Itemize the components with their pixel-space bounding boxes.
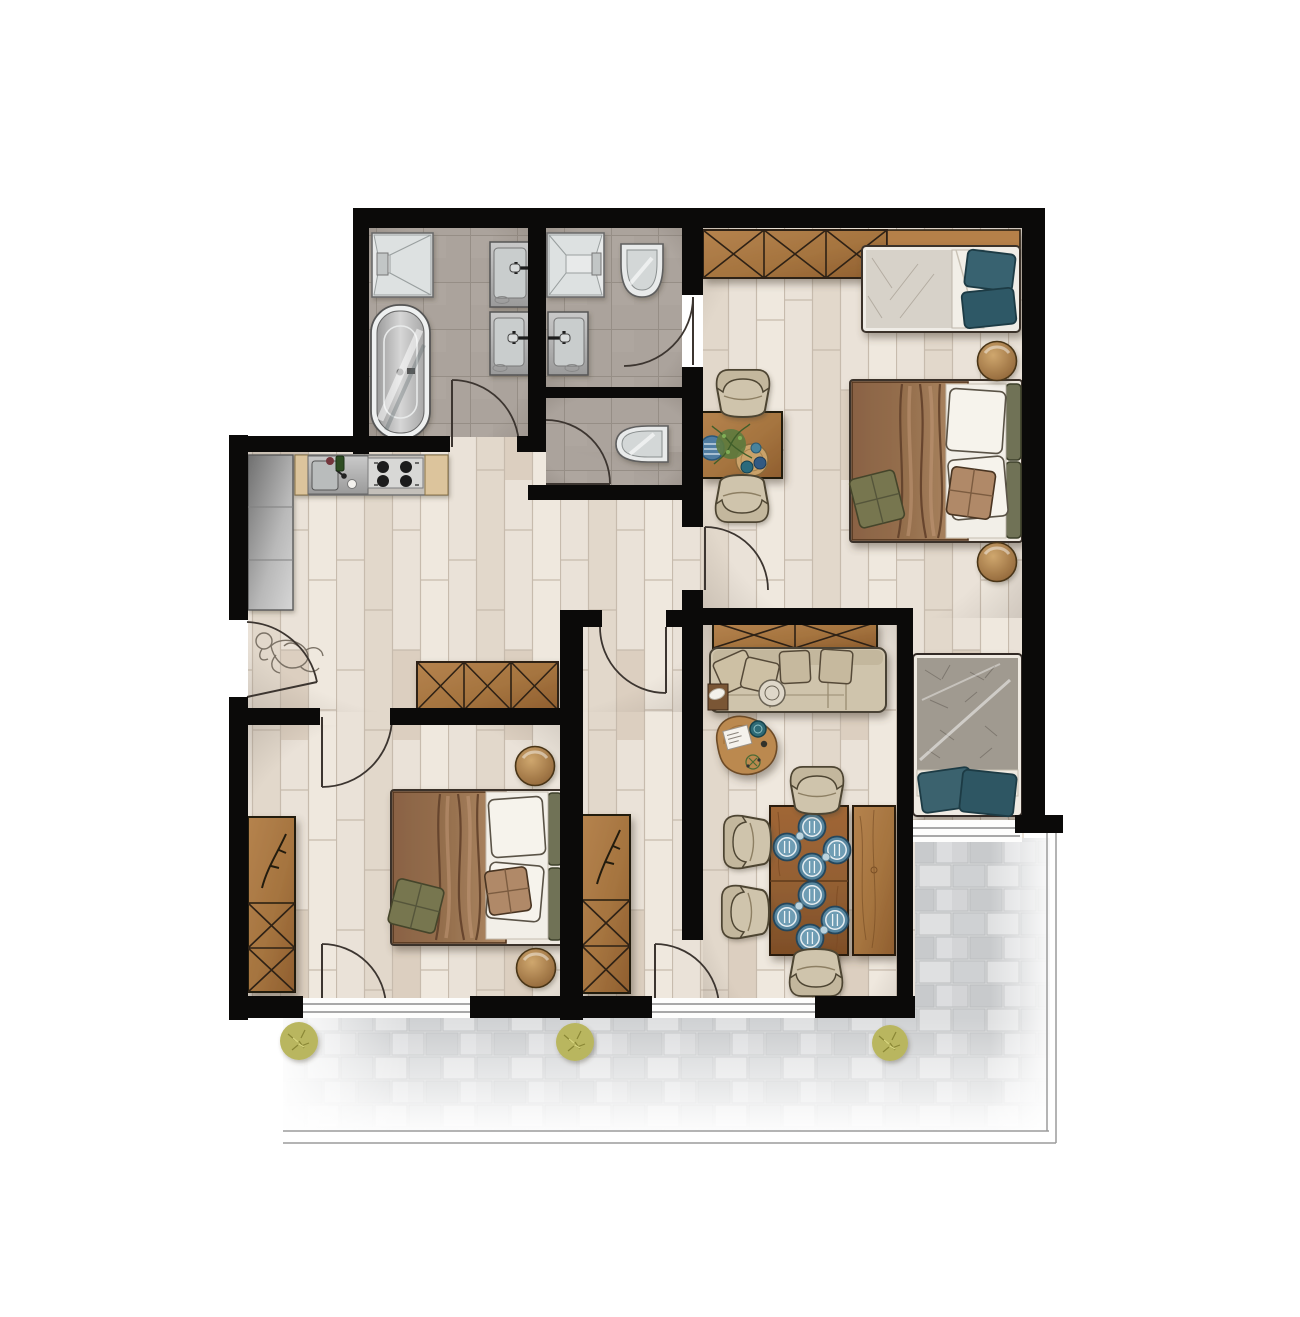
wall [229, 996, 303, 1018]
dining-chair [791, 767, 844, 814]
brown-accent-pillow [484, 866, 532, 915]
cooktop [368, 458, 423, 488]
wall [560, 610, 583, 1020]
headboard-cushion [548, 793, 562, 865]
glass [820, 926, 828, 934]
bowl [741, 461, 753, 473]
floor-plan-drawing [0, 0, 1300, 1317]
round-stool [978, 342, 1017, 381]
headboard-cushion [548, 868, 562, 940]
wall [517, 436, 546, 452]
wall [528, 485, 703, 500]
wall [1015, 815, 1063, 833]
cup-decor [348, 480, 357, 489]
round-stool [978, 543, 1017, 582]
dining-chair [722, 886, 769, 939]
round-stool [517, 949, 556, 988]
glass [822, 853, 830, 861]
floor-plan-canvas [0, 0, 1300, 1317]
back-cushion [819, 649, 853, 684]
back-cushion [779, 650, 811, 684]
teal-bowl [750, 721, 766, 737]
wall [682, 590, 703, 940]
niche-south-window [913, 820, 1022, 842]
wall [229, 697, 248, 1020]
wall [369, 436, 450, 452]
terrace-window-dining [652, 998, 815, 1018]
armchair [717, 370, 770, 417]
wall [390, 708, 563, 725]
wall [229, 436, 369, 452]
single-bed [862, 246, 1020, 332]
white-pillow [488, 796, 546, 858]
washbasin [548, 312, 588, 375]
wall [353, 208, 369, 454]
teal-pillow [964, 249, 1016, 292]
wall [229, 708, 320, 725]
toilet [621, 244, 663, 297]
wall [1022, 208, 1045, 833]
walk-in-shower [547, 233, 604, 297]
daybed-mattress [917, 658, 1018, 772]
sofa [708, 648, 886, 712]
wall [666, 610, 703, 627]
tall-cabinet-run [248, 455, 293, 610]
flower-decor [326, 457, 334, 465]
washbasin [490, 242, 532, 307]
wall [897, 608, 913, 1018]
wall [353, 208, 1045, 228]
kitchen-sink [308, 456, 368, 494]
teal-pillow [959, 769, 1017, 816]
armchair [716, 475, 769, 522]
bush [556, 1023, 594, 1061]
terrace-window-bedroom-2 [303, 998, 470, 1018]
wall [815, 996, 915, 1018]
counter-wood-end [425, 455, 448, 495]
wall [546, 387, 682, 398]
wardrobe-branch-decor [248, 817, 295, 992]
double-bed [387, 790, 563, 945]
white-pillow [946, 388, 1006, 454]
dining-chair [724, 816, 771, 869]
headboard-cushion [1006, 462, 1021, 538]
counter-wood-end [295, 455, 308, 495]
glass [795, 902, 803, 910]
small-dish [761, 741, 767, 747]
washbasin [490, 312, 530, 375]
toilet [616, 426, 668, 462]
round-tray [759, 680, 785, 706]
bottle-decor [336, 456, 344, 471]
wall [682, 608, 913, 625]
daybed-niche [913, 654, 1022, 817]
brown-accent-pillow [946, 466, 996, 520]
walk-in-shower [372, 233, 433, 297]
bush [280, 1022, 318, 1060]
headboard-cushion [1006, 384, 1021, 460]
bush [872, 1025, 908, 1061]
side-table [700, 412, 782, 478]
round-stool [516, 747, 555, 786]
wall [470, 996, 652, 1018]
hall-wardrobe [417, 662, 558, 710]
double-bed [849, 380, 1022, 542]
glass [796, 832, 804, 840]
wall [528, 228, 546, 436]
wall [682, 367, 703, 527]
sideboard [713, 622, 877, 648]
bowl [751, 443, 761, 453]
bowl [754, 457, 766, 469]
teal-pillow [961, 287, 1016, 328]
bathtub [371, 305, 430, 439]
wall [682, 228, 703, 295]
terrace-fade-right [990, 838, 1050, 1131]
dining-chair [790, 949, 843, 996]
corridor-sideboard [582, 815, 630, 993]
wall [229, 435, 248, 620]
wall [560, 610, 602, 627]
guest-wc [616, 426, 668, 462]
